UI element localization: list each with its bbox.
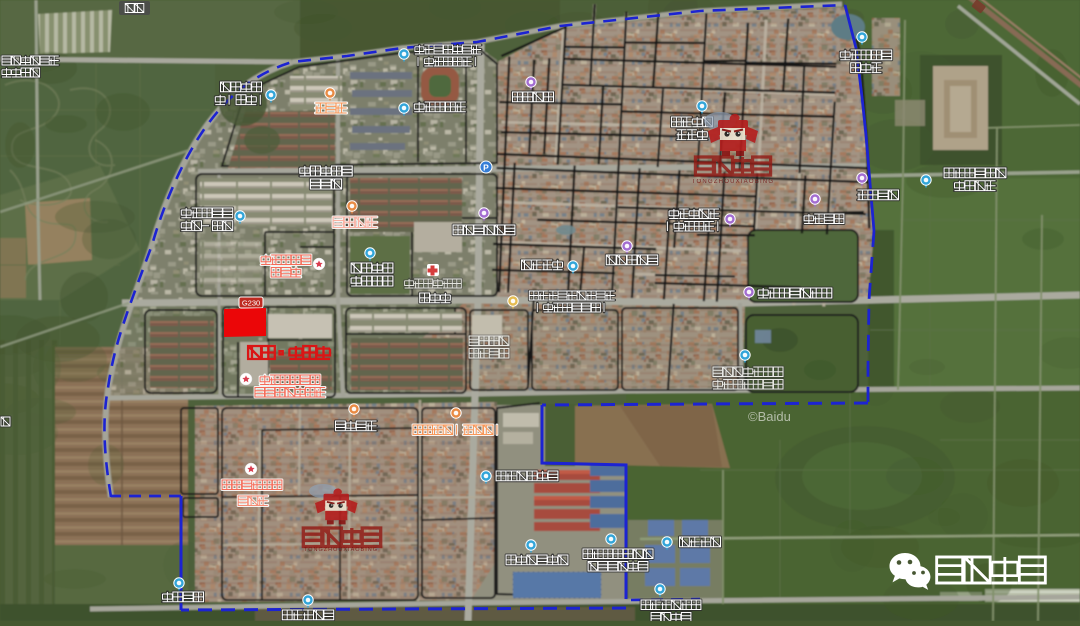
- svg-text:TONGZHOUXIAOBING: TONGZHOUXIAOBING: [304, 547, 378, 553]
- svg-text:G230: G230: [242, 299, 260, 308]
- svg-text:P: P: [483, 163, 489, 173]
- svg-text:TONGZHOUXIAOBING: TONGZHOUXIAOBING: [692, 179, 774, 185]
- svg-text:©Baidu: ©Baidu: [748, 409, 791, 424]
